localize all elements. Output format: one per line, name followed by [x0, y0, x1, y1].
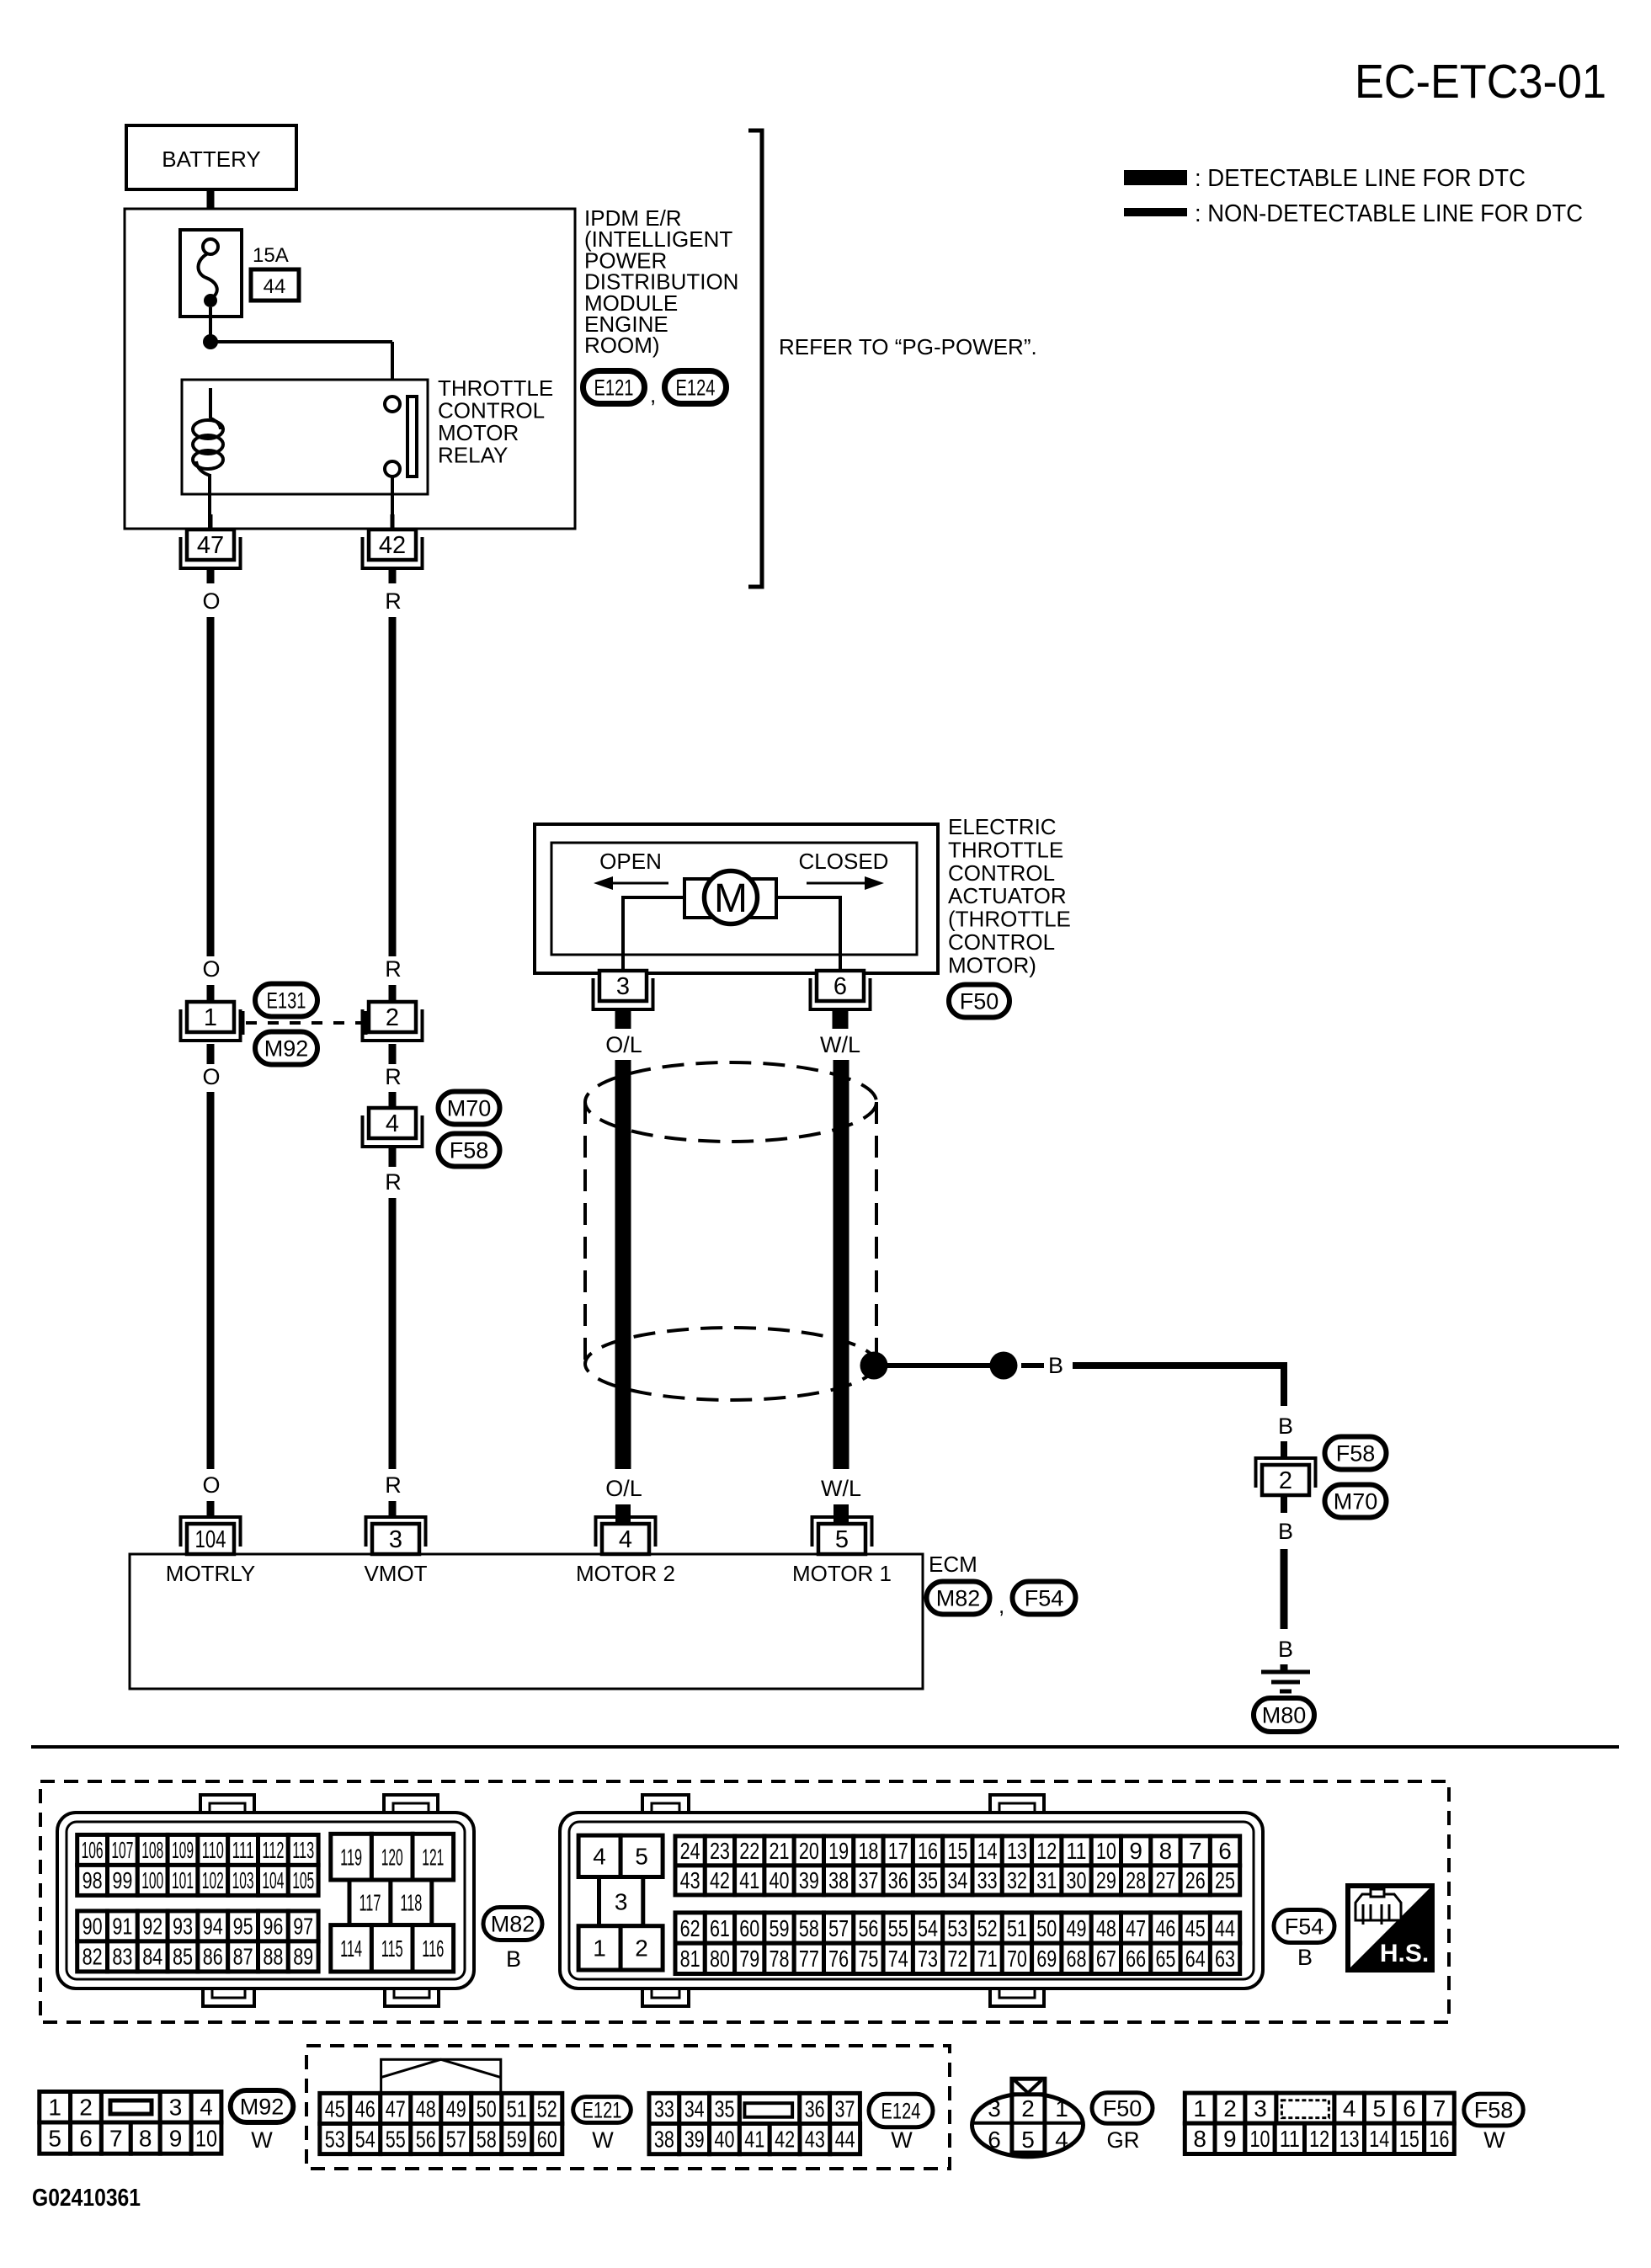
svg-text:8: 8 — [1159, 1838, 1173, 1864]
svg-text:100: 100 — [141, 1867, 163, 1893]
svg-text:RELAY: RELAY — [438, 443, 508, 468]
svg-text:53: 53 — [325, 2126, 345, 2152]
svg-text:115: 115 — [381, 1935, 403, 1962]
svg-text:58: 58 — [799, 1915, 819, 1941]
svg-text:12: 12 — [1036, 1838, 1057, 1864]
svg-text:R: R — [385, 1472, 402, 1498]
svg-text:F58: F58 — [450, 1137, 489, 1163]
svg-text:1: 1 — [204, 1004, 217, 1031]
svg-text:H.S.: H.S. — [1380, 1940, 1429, 1967]
svg-text:51: 51 — [507, 2095, 527, 2122]
svg-text:44: 44 — [835, 2126, 855, 2152]
svg-text:39: 39 — [684, 2126, 705, 2152]
svg-text:37: 37 — [858, 1867, 878, 1893]
svg-text:41: 41 — [744, 2126, 764, 2152]
svg-text:9: 9 — [169, 2126, 183, 2152]
svg-text:59: 59 — [507, 2126, 527, 2152]
svg-text:92: 92 — [142, 1914, 162, 1940]
svg-text:CONTROL: CONTROL — [438, 398, 545, 423]
svg-text:57: 57 — [828, 1915, 849, 1941]
svg-text:73: 73 — [918, 1946, 938, 1972]
svg-text:R: R — [385, 1064, 402, 1089]
svg-text:85: 85 — [173, 1944, 193, 1970]
svg-text:E121: E121 — [583, 2097, 622, 2122]
svg-text:F58: F58 — [1474, 2097, 1514, 2122]
svg-text:E124: E124 — [676, 375, 716, 400]
svg-text:W: W — [592, 2127, 614, 2153]
svg-text:22: 22 — [739, 1838, 759, 1864]
svg-text:4: 4 — [1343, 2095, 1356, 2122]
svg-text:CONTROL: CONTROL — [948, 860, 1055, 886]
svg-text:F54: F54 — [1025, 1585, 1064, 1610]
svg-text:W: W — [891, 2127, 913, 2153]
svg-text:70: 70 — [1007, 1946, 1027, 1972]
svg-text:81: 81 — [680, 1946, 700, 1972]
svg-text:87: 87 — [233, 1944, 253, 1970]
svg-text:11: 11 — [1067, 1838, 1087, 1864]
svg-text:5: 5 — [635, 1844, 648, 1870]
svg-text:M92: M92 — [264, 1036, 309, 1061]
svg-text:11: 11 — [1280, 2126, 1300, 2152]
svg-text:8: 8 — [139, 2126, 152, 2152]
svg-text:7: 7 — [1189, 1838, 1202, 1864]
svg-text:75: 75 — [858, 1946, 878, 1972]
svg-text:O/L: O/L — [605, 1032, 642, 1057]
svg-text:F50: F50 — [960, 988, 999, 1014]
svg-text:95: 95 — [233, 1914, 253, 1940]
svg-text:38: 38 — [828, 1867, 849, 1893]
svg-text:18: 18 — [858, 1838, 878, 1864]
svg-text:72: 72 — [947, 1946, 967, 1972]
svg-text:99: 99 — [112, 1867, 132, 1893]
svg-text:46: 46 — [355, 2095, 375, 2122]
svg-text:25: 25 — [1215, 1867, 1235, 1893]
svg-text:3: 3 — [1254, 2095, 1267, 2122]
svg-text:48: 48 — [416, 2095, 436, 2122]
svg-text:89: 89 — [293, 1944, 313, 1970]
svg-text:E131: E131 — [267, 988, 306, 1013]
svg-text:5: 5 — [1021, 2127, 1035, 2153]
svg-text:106: 106 — [82, 1837, 104, 1863]
svg-text:98: 98 — [83, 1867, 103, 1893]
svg-text:45: 45 — [1185, 1915, 1206, 1941]
svg-text:27: 27 — [1155, 1867, 1175, 1893]
svg-text:CONTROL: CONTROL — [948, 929, 1055, 955]
svg-text:16: 16 — [1430, 2126, 1450, 2152]
svg-text:42: 42 — [710, 1867, 730, 1893]
svg-text:M82: M82 — [491, 1911, 535, 1936]
svg-text:GR: GR — [1107, 2127, 1140, 2153]
svg-text:93: 93 — [173, 1914, 193, 1940]
svg-text:61: 61 — [710, 1915, 730, 1941]
svg-text:40: 40 — [770, 1867, 790, 1893]
svg-text:M92: M92 — [240, 2094, 285, 2119]
svg-text:F58: F58 — [1336, 1440, 1376, 1466]
svg-text:3: 3 — [988, 2095, 1001, 2122]
svg-text:31: 31 — [1036, 1867, 1057, 1893]
svg-text:53: 53 — [947, 1915, 967, 1941]
svg-text:6: 6 — [1403, 2095, 1416, 2122]
svg-text:51: 51 — [1007, 1915, 1027, 1941]
svg-text:63: 63 — [1215, 1946, 1235, 1972]
svg-text:103: 103 — [232, 1867, 254, 1893]
svg-text:B: B — [1278, 1414, 1293, 1439]
svg-text:G02410361: G02410361 — [32, 2185, 141, 2212]
svg-text:30: 30 — [1067, 1867, 1087, 1893]
svg-text:43: 43 — [680, 1867, 700, 1893]
svg-text:3: 3 — [389, 1526, 402, 1553]
svg-text:76: 76 — [828, 1946, 849, 1972]
svg-text:6: 6 — [833, 973, 847, 1000]
svg-text:BATTERY: BATTERY — [162, 146, 261, 172]
svg-text:54: 54 — [918, 1915, 938, 1941]
svg-text:8: 8 — [1193, 2126, 1206, 2152]
svg-text:6: 6 — [79, 2126, 93, 2152]
svg-text:110: 110 — [202, 1837, 224, 1863]
svg-text:14: 14 — [1369, 2126, 1389, 2152]
svg-text:B: B — [1048, 1353, 1063, 1378]
svg-text:6: 6 — [1218, 1838, 1232, 1864]
svg-text:121: 121 — [422, 1844, 444, 1870]
svg-text:EC-ETC3-01: EC-ETC3-01 — [1355, 55, 1606, 109]
svg-text:50: 50 — [477, 2095, 497, 2122]
svg-text:86: 86 — [203, 1944, 223, 1970]
svg-text:38: 38 — [654, 2126, 674, 2152]
svg-text:O: O — [202, 1472, 220, 1498]
svg-text:1: 1 — [593, 1935, 606, 1962]
svg-text:17: 17 — [888, 1838, 908, 1864]
svg-text:50: 50 — [1036, 1915, 1057, 1941]
svg-text:(THROTTLE: (THROTTLE — [948, 907, 1071, 932]
svg-text:102: 102 — [202, 1867, 224, 1893]
svg-text:O/L: O/L — [605, 1476, 642, 1501]
svg-text:52: 52 — [977, 1915, 998, 1941]
svg-text:62: 62 — [680, 1915, 700, 1941]
svg-text:2: 2 — [79, 2095, 93, 2121]
svg-text:109: 109 — [172, 1837, 194, 1863]
svg-text:36: 36 — [805, 2095, 825, 2122]
svg-text:9: 9 — [1223, 2126, 1237, 2152]
svg-text:14: 14 — [977, 1838, 998, 1864]
svg-text:105: 105 — [292, 1867, 314, 1893]
svg-text:47: 47 — [1126, 1915, 1146, 1941]
svg-text:1: 1 — [48, 2095, 61, 2121]
svg-text:4: 4 — [619, 1526, 632, 1553]
svg-text:36: 36 — [888, 1867, 908, 1893]
svg-text:20: 20 — [799, 1838, 819, 1864]
svg-text:77: 77 — [799, 1946, 819, 1972]
svg-text:114: 114 — [340, 1935, 362, 1962]
svg-text:3: 3 — [169, 2095, 183, 2121]
svg-text:2: 2 — [1279, 1467, 1292, 1494]
svg-text:15A: 15A — [253, 244, 289, 267]
svg-text:W: W — [251, 2127, 273, 2153]
svg-text:W/L: W/L — [820, 1032, 860, 1057]
svg-text:48: 48 — [1096, 1915, 1116, 1941]
svg-text:,: , — [650, 382, 656, 407]
svg-text:80: 80 — [710, 1946, 730, 1972]
svg-text:119: 119 — [340, 1844, 362, 1870]
svg-text:58: 58 — [477, 2126, 497, 2152]
svg-text:1: 1 — [1055, 2095, 1068, 2122]
svg-text:M: M — [714, 876, 748, 921]
svg-text:108: 108 — [141, 1837, 163, 1863]
svg-text:7: 7 — [109, 2126, 123, 2152]
svg-text:REFER TO “PG-POWER”.: REFER TO “PG-POWER”. — [779, 334, 1037, 359]
svg-text:2: 2 — [386, 1004, 399, 1031]
svg-text:116: 116 — [422, 1935, 444, 1962]
svg-text:5: 5 — [1373, 2095, 1387, 2122]
svg-text:19: 19 — [828, 1838, 849, 1864]
svg-text:42: 42 — [379, 532, 406, 559]
svg-text:34: 34 — [684, 2095, 705, 2122]
svg-text:44: 44 — [1215, 1915, 1235, 1941]
svg-text:49: 49 — [1067, 1915, 1087, 1941]
svg-text:5: 5 — [48, 2126, 61, 2152]
svg-text:15: 15 — [1399, 2126, 1419, 2152]
svg-text:E121: E121 — [594, 375, 634, 400]
svg-text:23: 23 — [710, 1838, 730, 1864]
svg-text:94: 94 — [203, 1914, 223, 1940]
svg-text:4: 4 — [593, 1844, 606, 1870]
svg-text:O: O — [202, 956, 220, 982]
svg-text:2: 2 — [1021, 2095, 1035, 2122]
svg-text:M70: M70 — [1334, 1488, 1378, 1514]
svg-text:56: 56 — [416, 2126, 436, 2152]
svg-text:111: 111 — [232, 1837, 254, 1863]
svg-text:112: 112 — [262, 1837, 284, 1863]
svg-text:47: 47 — [386, 2095, 406, 2122]
svg-text:107: 107 — [111, 1837, 133, 1863]
svg-text:10: 10 — [1096, 1838, 1116, 1864]
svg-text:66: 66 — [1126, 1946, 1146, 1972]
svg-text:O: O — [202, 588, 220, 614]
svg-text:O: O — [202, 1064, 220, 1089]
svg-text:R: R — [385, 588, 402, 614]
svg-text:2: 2 — [635, 1935, 648, 1962]
svg-text:118: 118 — [400, 1890, 422, 1916]
svg-text:B: B — [1297, 1945, 1313, 1970]
svg-text:M70: M70 — [447, 1095, 492, 1121]
svg-text:96: 96 — [263, 1914, 283, 1940]
svg-text:,: , — [999, 1593, 1004, 1618]
svg-text:60: 60 — [537, 2126, 557, 2152]
svg-text:3: 3 — [616, 973, 630, 1000]
svg-text:47: 47 — [197, 532, 224, 559]
svg-text:117: 117 — [359, 1890, 381, 1916]
svg-text:29: 29 — [1096, 1867, 1116, 1893]
svg-text:F50: F50 — [1103, 2095, 1142, 2121]
svg-text:91: 91 — [112, 1914, 132, 1940]
svg-text:79: 79 — [739, 1946, 759, 1972]
svg-text:OPEN: OPEN — [599, 849, 662, 874]
svg-text:64: 64 — [1185, 1946, 1206, 1972]
svg-text:M80: M80 — [1262, 1702, 1307, 1728]
svg-text:32: 32 — [1007, 1867, 1027, 1893]
svg-text:5: 5 — [835, 1526, 849, 1553]
svg-text:33: 33 — [977, 1867, 998, 1893]
svg-text:78: 78 — [770, 1946, 790, 1972]
svg-text:40: 40 — [715, 2126, 735, 2152]
svg-text:7: 7 — [1433, 2095, 1446, 2122]
svg-text:57: 57 — [446, 2126, 466, 2152]
svg-text:15: 15 — [947, 1838, 967, 1864]
svg-text:4: 4 — [386, 1110, 399, 1137]
svg-text:43: 43 — [805, 2126, 825, 2152]
svg-text:26: 26 — [1185, 1867, 1206, 1893]
svg-text:120: 120 — [381, 1844, 403, 1870]
svg-text:60: 60 — [739, 1915, 759, 1941]
svg-text:B: B — [1278, 1519, 1293, 1544]
svg-text:13: 13 — [1007, 1838, 1027, 1864]
svg-text:55: 55 — [386, 2126, 406, 2152]
svg-text:34: 34 — [947, 1867, 967, 1893]
svg-text:THROTTLE: THROTTLE — [948, 837, 1063, 862]
svg-text:10: 10 — [195, 2126, 217, 2152]
svg-text:12: 12 — [1309, 2126, 1329, 2152]
svg-text:82: 82 — [83, 1944, 103, 1970]
svg-text:28: 28 — [1126, 1867, 1146, 1893]
svg-text:6: 6 — [988, 2127, 1001, 2153]
svg-text:10: 10 — [1250, 2126, 1270, 2152]
svg-text:104: 104 — [262, 1867, 284, 1893]
svg-text:W/L: W/L — [821, 1476, 861, 1501]
svg-text:W: W — [1483, 2127, 1505, 2153]
svg-text:3: 3 — [615, 1888, 628, 1914]
svg-text:24: 24 — [680, 1838, 700, 1864]
svg-text:4: 4 — [1055, 2127, 1068, 2153]
svg-text:90: 90 — [83, 1914, 103, 1940]
svg-text:R: R — [385, 956, 402, 982]
svg-text:21: 21 — [770, 1838, 790, 1864]
svg-text:B: B — [1278, 1637, 1293, 1662]
svg-text:104: 104 — [195, 1526, 226, 1553]
svg-text:2: 2 — [1223, 2095, 1237, 2122]
svg-text:9: 9 — [1129, 1838, 1142, 1864]
svg-text:101: 101 — [172, 1867, 194, 1893]
svg-text:88: 88 — [263, 1944, 283, 1970]
svg-text:44: 44 — [264, 275, 286, 298]
svg-text:68: 68 — [1067, 1946, 1087, 1972]
svg-text:MOTOR): MOTOR) — [948, 952, 1036, 977]
svg-text:59: 59 — [770, 1915, 790, 1941]
svg-text:MOTOR 1: MOTOR 1 — [792, 1561, 892, 1586]
svg-text:4: 4 — [200, 2095, 213, 2121]
svg-text:33: 33 — [654, 2095, 674, 2122]
svg-text:65: 65 — [1155, 1946, 1175, 1972]
svg-text:: DETECTABLE LINE FOR DTC: : DETECTABLE LINE FOR DTC — [1195, 165, 1526, 192]
svg-text:MOTOR 2: MOTOR 2 — [576, 1561, 675, 1586]
svg-text:42: 42 — [775, 2126, 795, 2152]
svg-text:13: 13 — [1339, 2126, 1360, 2152]
svg-text:: NON-DETECTABLE LINE FOR DTC: : NON-DETECTABLE LINE FOR DTC — [1195, 200, 1583, 227]
svg-text:F54: F54 — [1285, 1914, 1324, 1939]
svg-text:113: 113 — [292, 1837, 314, 1863]
svg-text:THROTTLE: THROTTLE — [438, 375, 553, 401]
svg-text:84: 84 — [142, 1944, 162, 1970]
svg-text:E124: E124 — [881, 2098, 921, 2123]
svg-text:37: 37 — [835, 2095, 855, 2122]
svg-text:MOTRLY: MOTRLY — [166, 1561, 255, 1586]
svg-text:ELECTRIC: ELECTRIC — [948, 814, 1057, 839]
svg-text:R: R — [385, 1169, 402, 1195]
svg-text:69: 69 — [1036, 1946, 1057, 1972]
svg-text:M82: M82 — [936, 1585, 981, 1610]
svg-text:1: 1 — [1193, 2095, 1206, 2122]
svg-text:35: 35 — [715, 2095, 735, 2122]
svg-text:MOTOR: MOTOR — [438, 420, 519, 445]
svg-text:56: 56 — [858, 1915, 878, 1941]
svg-text:46: 46 — [1155, 1915, 1175, 1941]
svg-text:16: 16 — [918, 1838, 938, 1864]
svg-text:B: B — [506, 1946, 521, 1972]
svg-text:35: 35 — [918, 1867, 938, 1893]
svg-text:52: 52 — [537, 2095, 557, 2122]
svg-text:39: 39 — [799, 1867, 819, 1893]
svg-text:45: 45 — [325, 2095, 345, 2122]
svg-text:55: 55 — [888, 1915, 908, 1941]
svg-text:ACTUATOR: ACTUATOR — [948, 883, 1067, 908]
svg-text:71: 71 — [977, 1946, 998, 1972]
svg-text:VMOT: VMOT — [364, 1561, 427, 1586]
svg-text:49: 49 — [446, 2095, 466, 2122]
svg-text:CLOSED: CLOSED — [799, 849, 889, 874]
svg-text:41: 41 — [739, 1867, 759, 1893]
svg-text:74: 74 — [888, 1946, 908, 1972]
svg-text:97: 97 — [293, 1914, 313, 1940]
svg-text:67: 67 — [1096, 1946, 1116, 1972]
svg-text:ECM: ECM — [929, 1552, 977, 1577]
svg-text:ROOM): ROOM) — [584, 333, 660, 358]
svg-text:83: 83 — [112, 1944, 132, 1970]
svg-text:54: 54 — [355, 2126, 375, 2152]
